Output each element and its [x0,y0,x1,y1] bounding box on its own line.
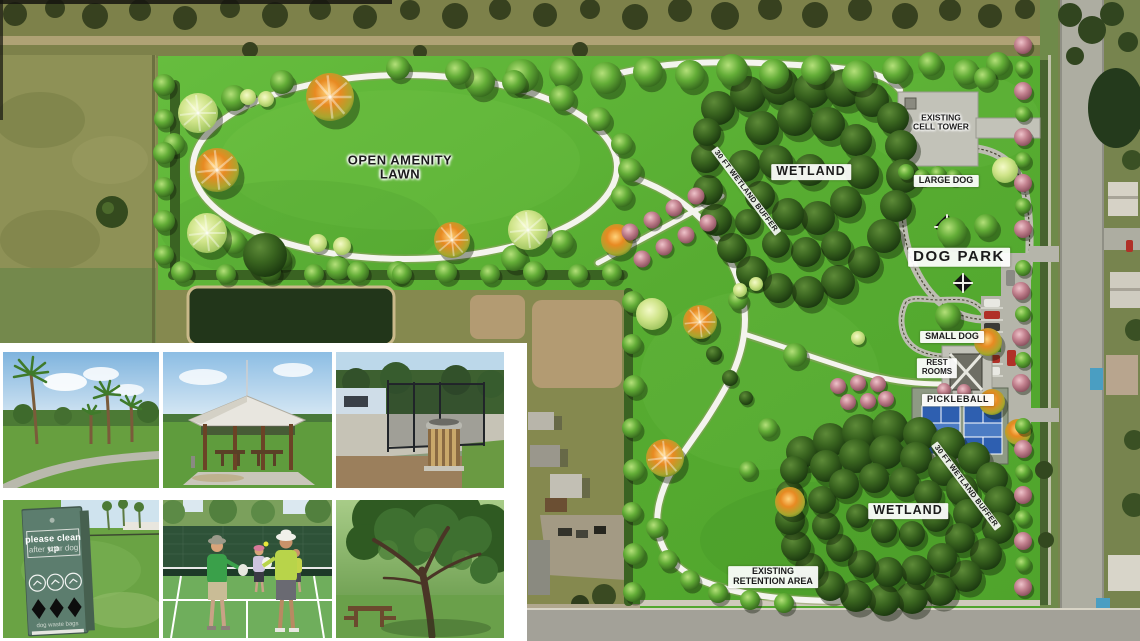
label-wetland-south: WETLAND [868,503,948,519]
photo-pickleball-players [163,500,332,638]
label-existing-cell-tower: EXISTING CELL TOWER [908,113,974,134]
label-small-dog: SMALL DOG [920,331,984,343]
aerial-street-and-houses [1035,0,1140,641]
label-restrooms: REST ROOMS [917,358,957,378]
photo-inset-panel: please clean up after your dog dog waste… [0,343,527,641]
park-master-plan-rendering: OPEN AMENITY LAWN WETLAND 30 FT WETLAND … [0,0,1140,641]
photo-oak-tree-picnic-table [336,500,504,638]
label-open-amenity-lawn: OPEN AMENITY LAWN [343,153,457,184]
label-dog-park: DOG PARK [908,248,1010,267]
dog-waste-sign: please clean up after your dog dog waste… [21,504,96,637]
photo-picnic-pavilion [163,352,332,488]
label-existing-retention-area: EXISTING RETENTION AREA [728,566,818,588]
label-pickleball: PICKLEBALL [922,394,994,406]
photo-palm-lined-path [3,352,159,488]
label-wetland-north: WETLAND [771,164,851,180]
photo-dog-park-fence-trash-can [336,352,504,488]
label-large-dog: LARGE DOG [914,175,979,187]
photo-dog-waste-station-sign: please clean up after your dog dog waste… [3,500,159,638]
